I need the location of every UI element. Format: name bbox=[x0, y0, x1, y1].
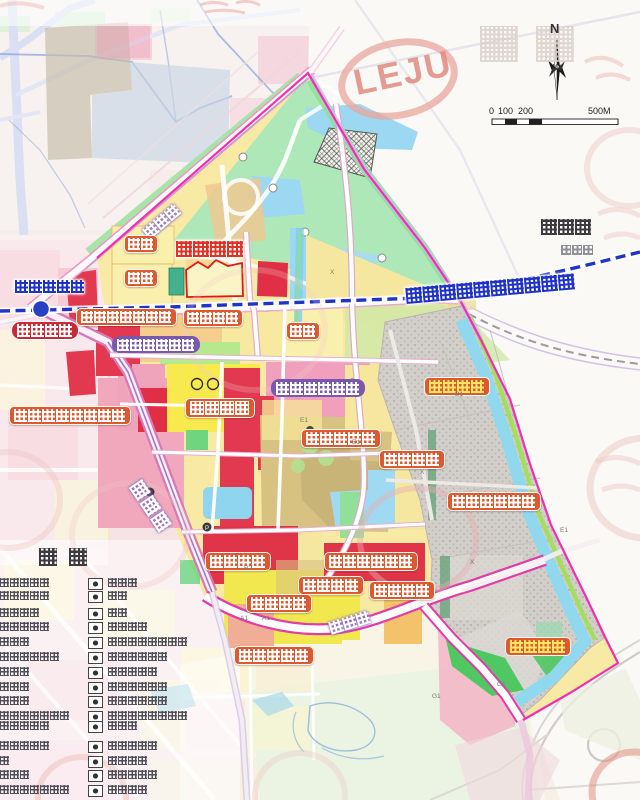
svg-text:P: P bbox=[205, 526, 209, 532]
